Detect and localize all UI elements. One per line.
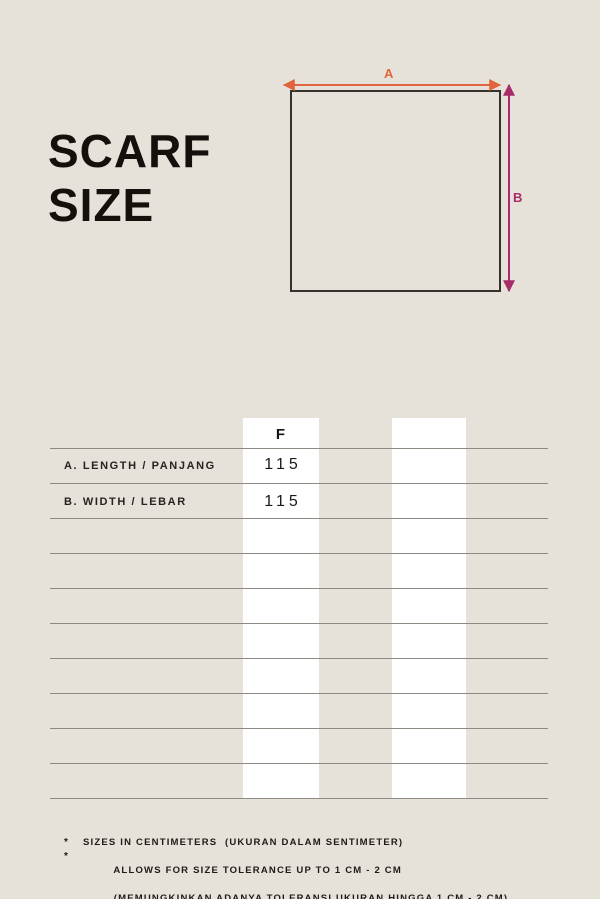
size-guide-page: SCARF SIZE A B F A. LEN <box>0 0 600 899</box>
size-table: F A. LENGTH / PANJANG 115 B. WIDTH / LEB… <box>50 413 548 803</box>
row-value-length-f: 115 <box>243 456 319 474</box>
footnote-tolerance-text: ALLOWS FOR SIZE TOLERANCE UP TO 1 CM - 2… <box>83 850 508 899</box>
table-grid-line <box>50 553 548 554</box>
dimension-label-a: A <box>384 66 394 81</box>
table-grid-line <box>50 483 548 484</box>
column-band-empty <box>392 418 466 798</box>
footnote-tolerance-line1: ALLOWS FOR SIZE TOLERANCE UP TO 1 CM - 2… <box>113 865 402 876</box>
page-title-line2: SIZE <box>48 178 211 232</box>
dimension-arrows <box>270 60 550 310</box>
page-title: SCARF SIZE <box>48 124 211 232</box>
table-grid-line <box>50 658 548 659</box>
footnote-tolerance-line2: (MEMUNGKINKAN ADANYA TOLERANSI UKURAN HI… <box>114 893 509 899</box>
footnote-tolerance: * ALLOWS FOR SIZE TOLERANCE UP TO 1 CM -… <box>64 850 508 899</box>
asterisk-bullet: * <box>64 836 83 850</box>
table-grid-line <box>50 728 548 729</box>
footnote-sizes: * SIZES IN CENTIMETERS (UKURAN DALAM SEN… <box>64 836 508 850</box>
footnote-sizes-text: SIZES IN CENTIMETERS (UKURAN DALAM SENTI… <box>83 836 403 850</box>
table-grid-line <box>50 588 548 589</box>
table-grid-line <box>50 518 548 519</box>
table-grid-line <box>50 693 548 694</box>
table-grid-line <box>50 448 548 449</box>
row-value-width-f: 115 <box>243 493 319 511</box>
table-grid-line <box>50 623 548 624</box>
row-label-length: A. LENGTH / PANJANG <box>64 460 216 472</box>
asterisk-bullet: * <box>64 850 83 864</box>
footnotes: * SIZES IN CENTIMETERS (UKURAN DALAM SEN… <box>64 836 508 899</box>
row-label-width: B. WIDTH / LEBAR <box>64 496 187 508</box>
page-title-line1: SCARF <box>48 124 211 178</box>
column-band-f <box>243 418 319 798</box>
column-header-f: F <box>243 426 319 443</box>
table-grid-line <box>50 798 548 799</box>
table-grid-line <box>50 763 548 764</box>
dimension-label-b: B <box>513 190 523 205</box>
